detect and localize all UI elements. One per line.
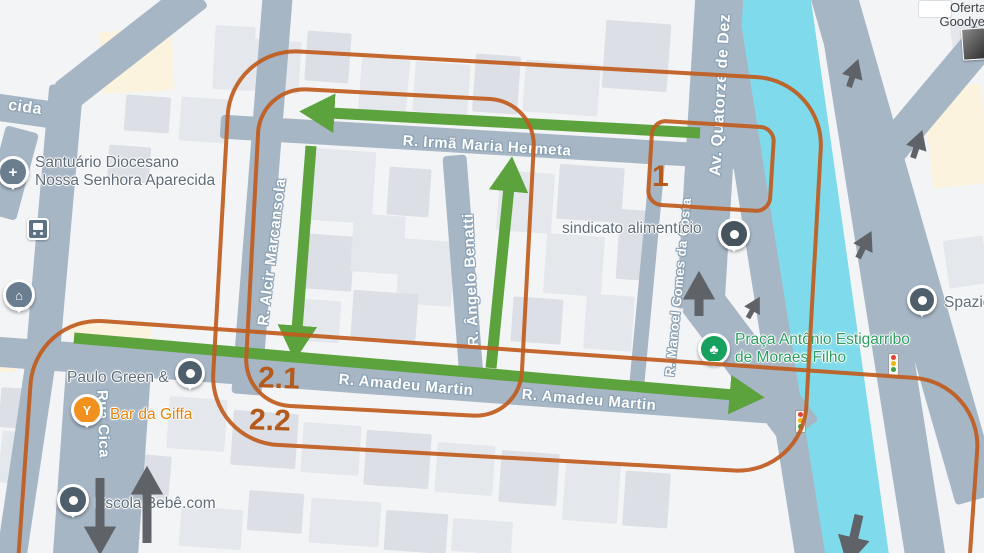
- route-label-2-2: 2.2: [248, 403, 291, 438]
- highway-chevron: [858, 246, 864, 258]
- route-label-1: 1: [652, 160, 669, 194]
- map-canvas[interactable]: cida R. Irmã Maria Hermeta Av. Quatorze …: [0, 0, 984, 553]
- route-label-2-1: 2.1: [257, 361, 300, 396]
- highway-chevron: [849, 75, 853, 87]
- highway-chevron: [913, 146, 917, 158]
